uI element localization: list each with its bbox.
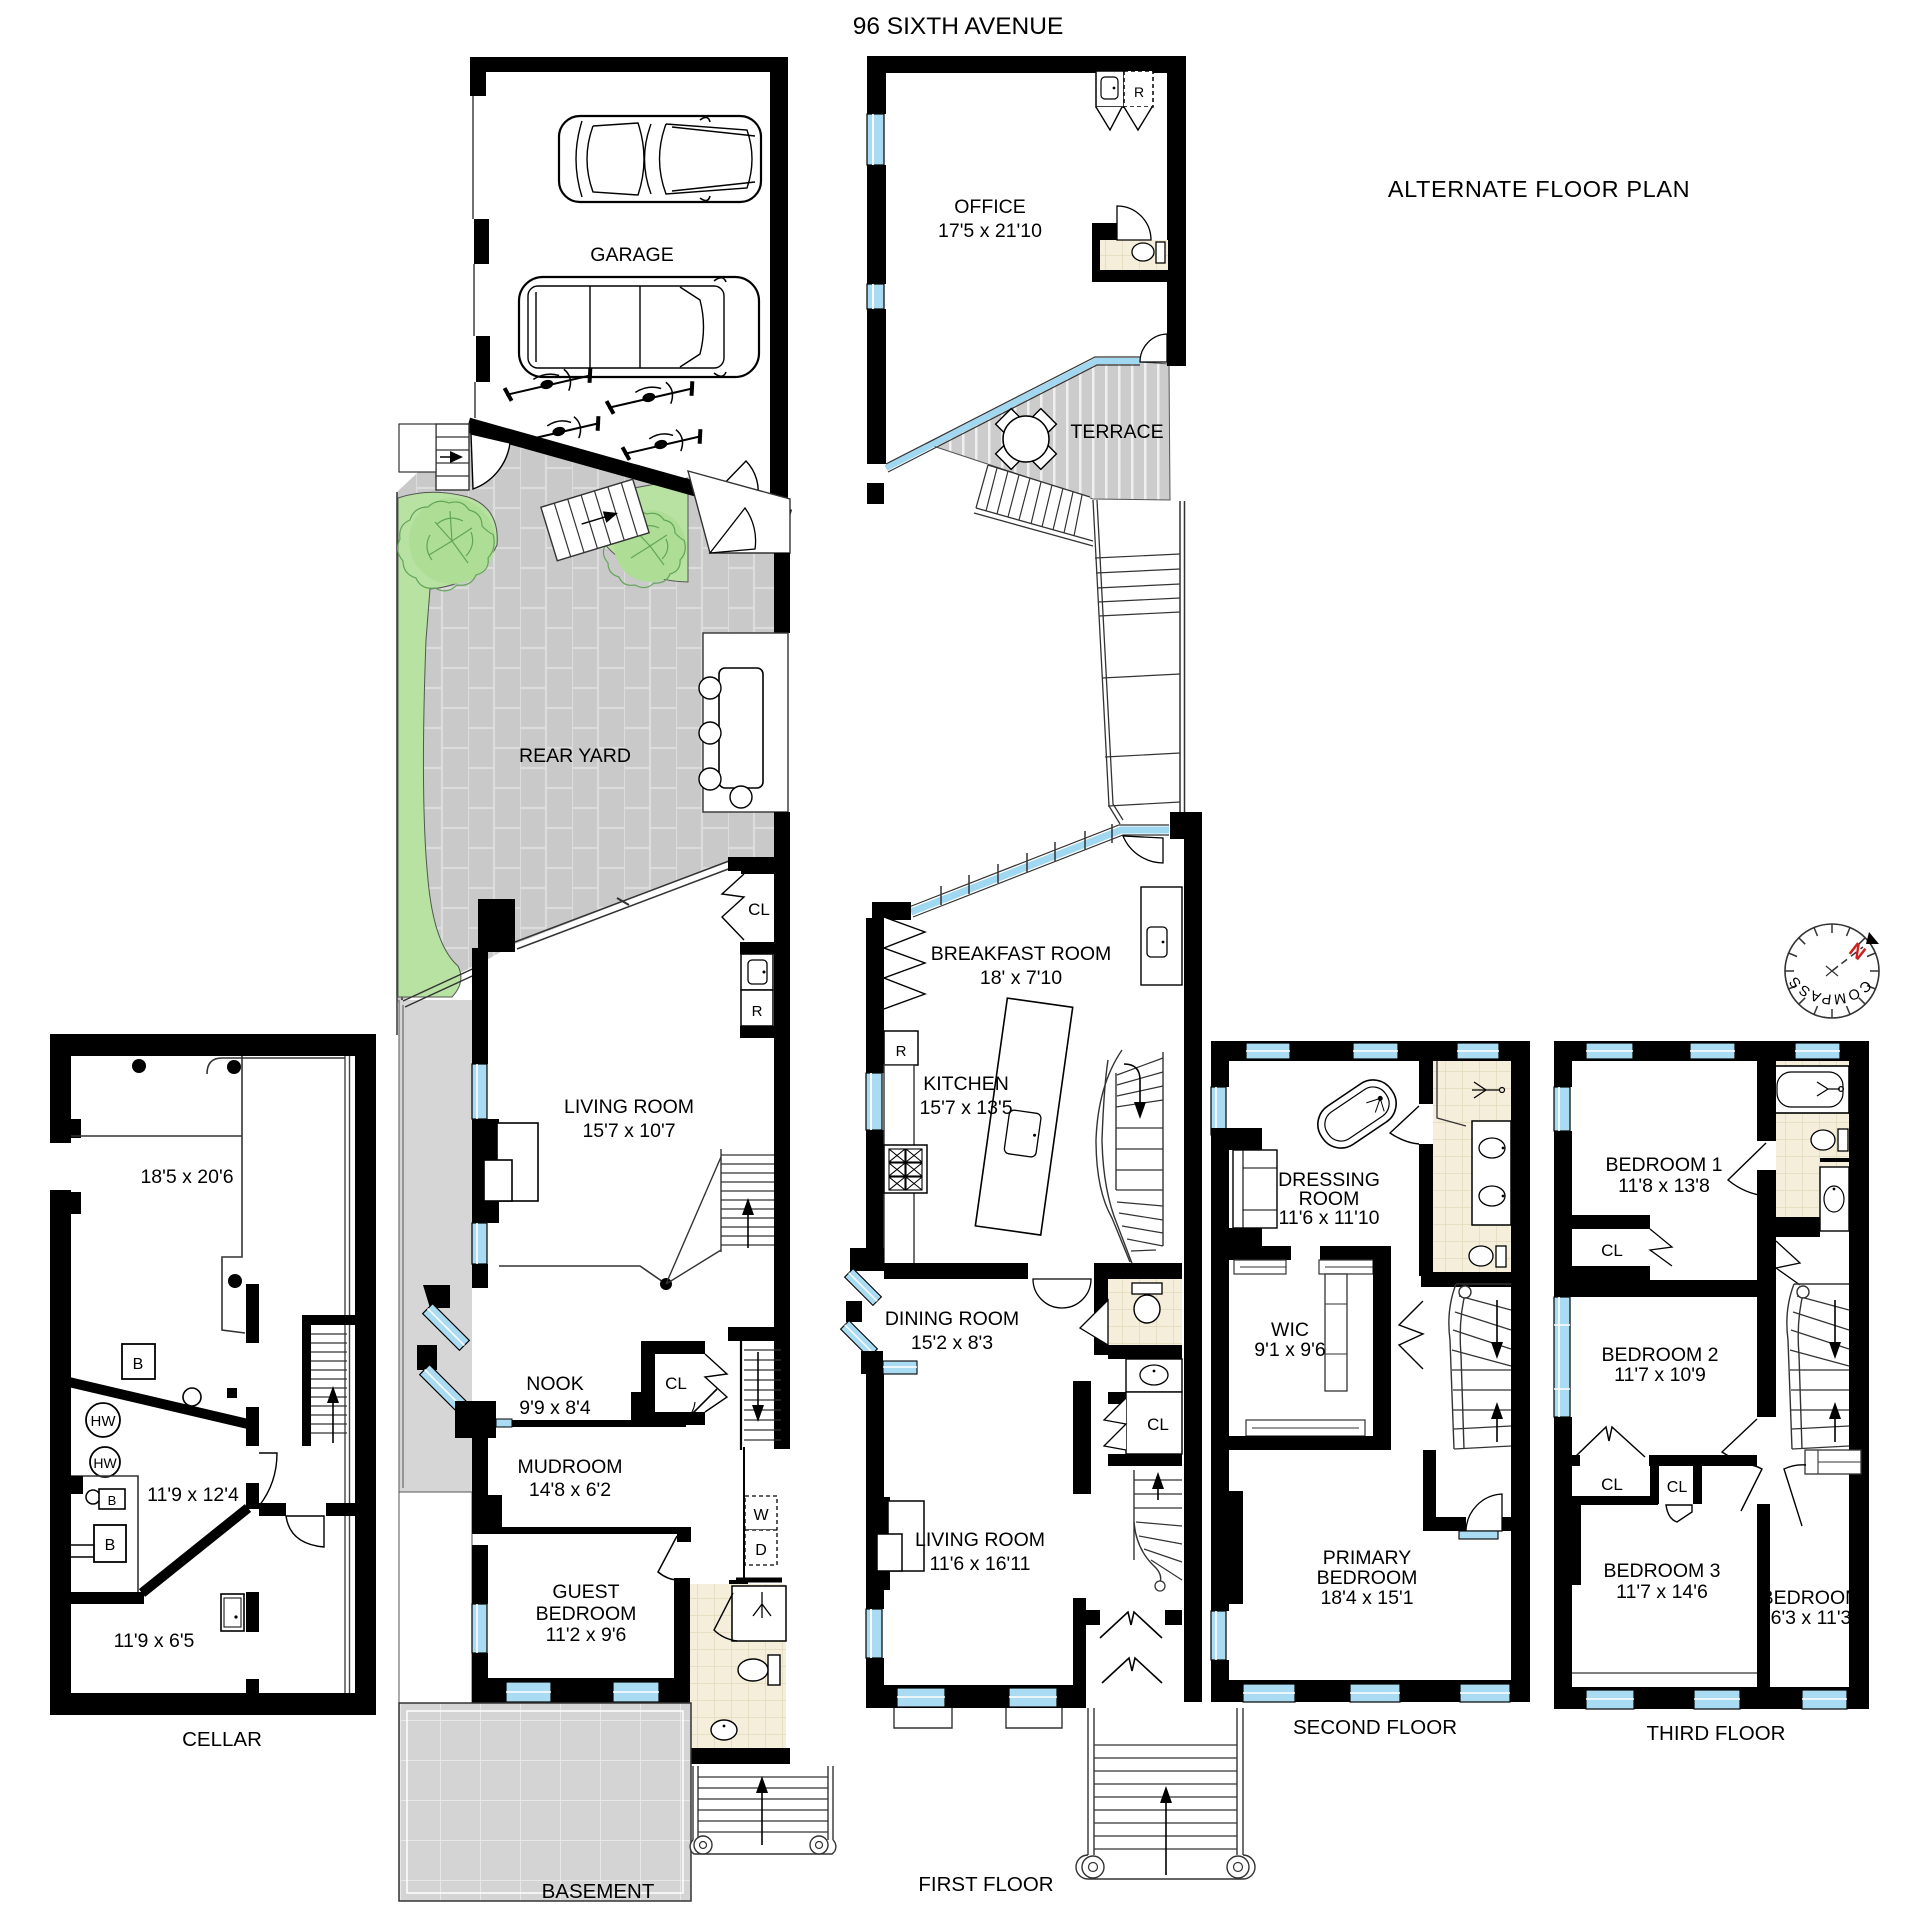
svg-text:LIVING ROOM: LIVING ROOM	[915, 1529, 1045, 1551]
svg-text:GUEST: GUEST	[552, 1581, 619, 1603]
svg-text:BEDROOM 3: BEDROOM 3	[1603, 1560, 1720, 1582]
svg-text:6'3 x 11'3: 6'3 x 11'3	[1771, 1607, 1852, 1629]
svg-text:CL: CL	[1601, 1475, 1623, 1494]
svg-text:18'5 x 20'6: 18'5 x 20'6	[140, 1166, 233, 1188]
svg-text:BEDROOM: BEDROOM	[1317, 1567, 1418, 1589]
svg-text:CL: CL	[665, 1374, 687, 1393]
svg-text:WIC: WIC	[1271, 1319, 1309, 1341]
svg-text:BEDROOM: BEDROOM	[536, 1603, 637, 1625]
svg-text:11'6 x 16'11: 11'6 x 16'11	[929, 1553, 1030, 1575]
svg-text:11'2 x 9'6: 11'2 x 9'6	[546, 1624, 627, 1646]
svg-text:HW: HW	[91, 1413, 117, 1430]
svg-text:11'8 x 13'8: 11'8 x 13'8	[1618, 1175, 1710, 1197]
svg-text:15'7 x 10'7: 15'7 x 10'7	[582, 1120, 675, 1142]
svg-text:SECOND FLOOR: SECOND FLOOR	[1293, 1716, 1457, 1739]
svg-text:11'9 x 12'4: 11'9 x 12'4	[147, 1484, 239, 1506]
svg-text:FIRST FLOOR: FIRST FLOOR	[918, 1873, 1053, 1896]
svg-text:HW: HW	[93, 1455, 117, 1471]
svg-text:PRIMARY: PRIMARY	[1323, 1547, 1412, 1569]
svg-text:11'7 x 14'6: 11'7 x 14'6	[1616, 1581, 1708, 1603]
svg-text:R: R	[1134, 84, 1144, 100]
svg-text:18'4 x 15'1: 18'4 x 15'1	[1320, 1587, 1413, 1609]
svg-text:14'8 x 6'2: 14'8 x 6'2	[529, 1479, 611, 1501]
svg-text:OFFICE: OFFICE	[954, 196, 1026, 218]
svg-text:B: B	[105, 1537, 116, 1554]
svg-text:KITCHEN: KITCHEN	[923, 1073, 1009, 1095]
svg-text:BEDROOM 2: BEDROOM 2	[1601, 1344, 1718, 1366]
svg-text:CL: CL	[1667, 1479, 1688, 1496]
svg-text:BEDROOM: BEDROOM	[1761, 1587, 1862, 1609]
svg-text:TERRACE: TERRACE	[1070, 421, 1163, 443]
svg-text:11'9 x 6'5: 11'9 x 6'5	[114, 1630, 195, 1652]
svg-text:R: R	[896, 1043, 907, 1060]
svg-text:CL: CL	[1601, 1241, 1623, 1260]
svg-text:CL: CL	[748, 900, 770, 919]
svg-text:W: W	[753, 1507, 769, 1524]
svg-text:CELLAR: CELLAR	[182, 1728, 262, 1751]
svg-text:BEDROOM 1: BEDROOM 1	[1605, 1154, 1722, 1176]
svg-text:REAR YARD: REAR YARD	[519, 745, 631, 767]
svg-text:15'2 x 8'3: 15'2 x 8'3	[911, 1332, 993, 1354]
svg-text:THIRD FLOOR: THIRD FLOOR	[1647, 1722, 1786, 1745]
svg-text:18' x 7'10: 18' x 7'10	[980, 967, 1062, 989]
svg-text:17'5 x 21'10: 17'5 x 21'10	[938, 220, 1042, 242]
svg-text:9'9 x 8'4: 9'9 x 8'4	[519, 1397, 591, 1419]
svg-text:BREAKFAST ROOM: BREAKFAST ROOM	[931, 943, 1112, 965]
svg-text:96 SIXTH AVENUE: 96 SIXTH AVENUE	[853, 13, 1064, 40]
svg-text:11'6 x 11'10: 11'6 x 11'10	[1278, 1207, 1379, 1229]
svg-text:9'1 x 9'6: 9'1 x 9'6	[1254, 1339, 1325, 1361]
svg-text:B: B	[133, 1356, 144, 1373]
svg-text:D: D	[755, 1542, 767, 1559]
svg-text:BASEMENT: BASEMENT	[542, 1880, 655, 1903]
svg-text:CL: CL	[1147, 1415, 1169, 1434]
svg-text:R: R	[752, 1003, 763, 1020]
svg-text:B: B	[108, 1493, 117, 1508]
svg-text:ALTERNATE FLOOR PLAN: ALTERNATE FLOOR PLAN	[1388, 176, 1690, 202]
svg-text:GARAGE: GARAGE	[590, 244, 673, 266]
svg-text:NOOK: NOOK	[526, 1373, 583, 1395]
svg-text:DINING ROOM: DINING ROOM	[885, 1308, 1019, 1330]
svg-text:15'7 x 13'5: 15'7 x 13'5	[919, 1097, 1012, 1119]
svg-text:MUDROOM: MUDROOM	[517, 1456, 622, 1478]
svg-text:11'7 x 10'9: 11'7 x 10'9	[1614, 1364, 1706, 1386]
svg-text:LIVING ROOM: LIVING ROOM	[564, 1096, 694, 1118]
